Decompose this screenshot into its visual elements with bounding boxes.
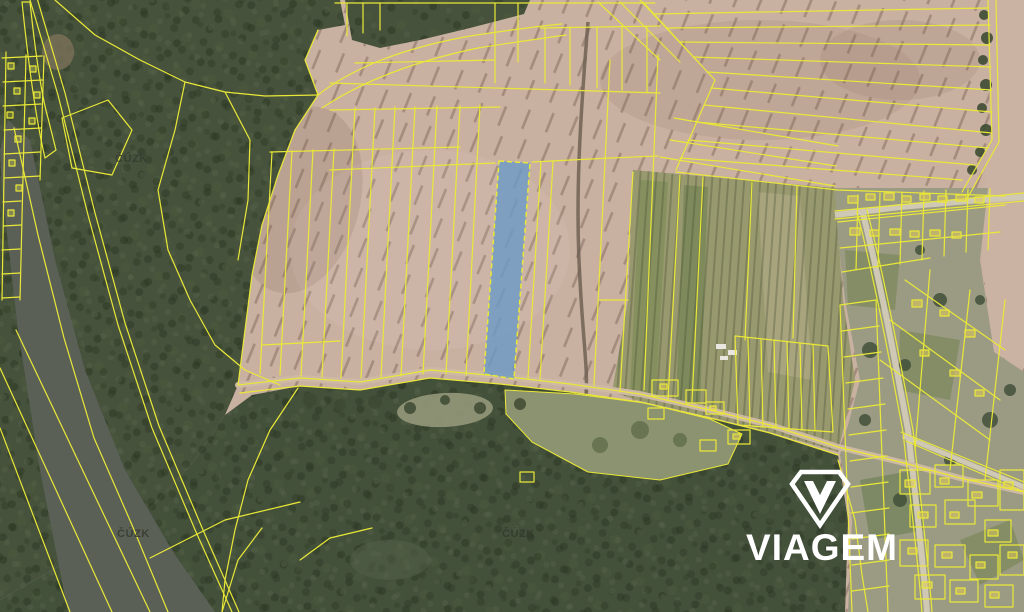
map-canvas[interactable]: ČÚZK ČÚZK ČÚZK VIAGEM [0, 0, 1024, 612]
cuzk-watermark-2: ČÚZK [117, 527, 150, 540]
logo-text: VIAGEM [746, 527, 898, 568]
cuzk-watermark-3: ČÚZK [502, 527, 535, 540]
map-viewport[interactable]: ČÚZK ČÚZK ČÚZK VIAGEM [0, 0, 1024, 612]
cuzk-watermark-1: ČÚZK [115, 152, 148, 165]
